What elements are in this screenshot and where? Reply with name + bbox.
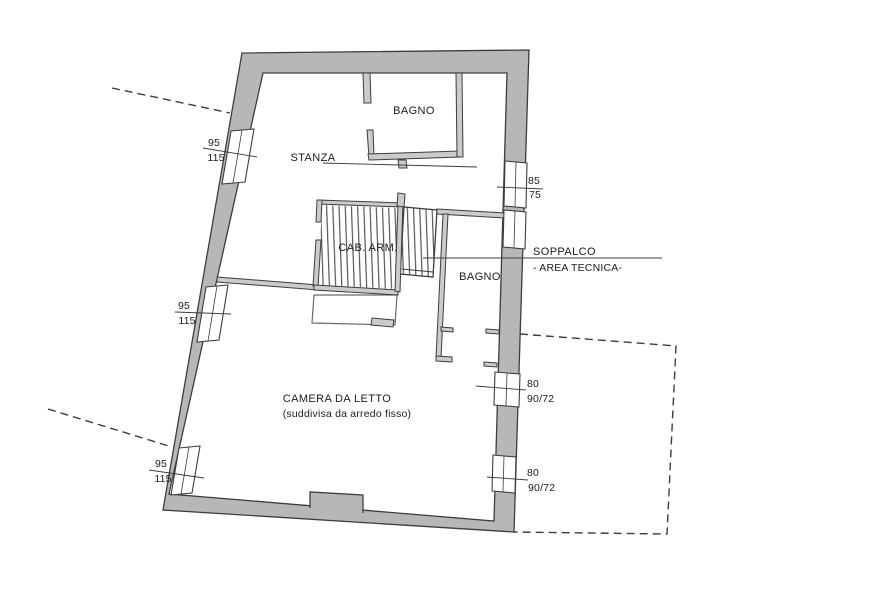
dim-right-mid-den: 90/72 bbox=[527, 393, 554, 405]
stairs-top-stub bbox=[397, 193, 405, 207]
dim-right-top-num: 85 bbox=[528, 175, 540, 187]
dashed-line-mid-left bbox=[48, 409, 172, 447]
camera-upper-partition-wall bbox=[217, 277, 318, 290]
red-area-corner-wall bbox=[371, 318, 394, 327]
floor-plan-drawing: 95 115 95 115 95 115 85 75 80 90/72 80 9… bbox=[0, 0, 875, 607]
dim-right-mid-num: 80 bbox=[527, 378, 539, 390]
dashed-boundary-right bbox=[514, 334, 676, 534]
bagno-top-door-stub bbox=[398, 160, 407, 168]
bagno-top-left-wall-upper bbox=[363, 73, 371, 103]
dim-left-mid-den: 115 bbox=[178, 315, 195, 327]
room-label-area-tecnica: - AREA TECNICA- bbox=[533, 262, 622, 274]
room-label-bagno-lower: BAGNO bbox=[459, 271, 501, 283]
hatch-areas bbox=[312, 205, 437, 327]
dashed-boundaries bbox=[48, 88, 676, 534]
room-label-soppalco: SOPPALCO bbox=[533, 246, 596, 258]
bagno-lower-left-wall bbox=[436, 214, 448, 358]
floor-plan: 95 115 95 115 95 115 85 75 80 90/72 80 9… bbox=[0, 0, 875, 607]
door-jamb-tick-right-lower bbox=[484, 362, 497, 367]
room-label-camera-sub: (suddivisa da arredo fisso) bbox=[283, 408, 412, 420]
soppalco-stairs bbox=[400, 207, 437, 277]
dim-left-bottom-den: 115 bbox=[154, 473, 171, 485]
dim-left-top-den: 115 bbox=[207, 152, 224, 164]
dim-left-mid-num: 95 bbox=[178, 300, 190, 312]
cab-arm-left-wall-upper bbox=[316, 200, 322, 222]
bagno-top-right-wall bbox=[456, 73, 463, 157]
bagno-top-left-wall-lower bbox=[367, 130, 374, 157]
dim-right-bottom-num: 80 bbox=[527, 467, 539, 479]
dim-left-bottom-num: 95 bbox=[155, 458, 167, 470]
dim-right-bottom-den: 90/72 bbox=[528, 482, 555, 494]
bagno-lower-wall-end-stub bbox=[436, 356, 452, 362]
room-label-bagno-top: BAGNO bbox=[393, 105, 435, 117]
dim-left-top-num: 95 bbox=[208, 137, 220, 149]
dim-right-top-den: 75 bbox=[529, 189, 541, 201]
door-jamb-tick-right-upper bbox=[486, 329, 499, 334]
room-label-stanza: STANZA bbox=[291, 152, 336, 164]
dashed-line-top-left bbox=[112, 88, 230, 113]
door-jamb-tick-left bbox=[441, 327, 453, 332]
room-label-camera: CAMERA DA LETTO bbox=[283, 393, 392, 405]
room-label-cab-arm: CAB. ARM. bbox=[338, 242, 397, 254]
bagno-top-bottom-wall bbox=[368, 151, 461, 160]
windows bbox=[171, 129, 527, 495]
